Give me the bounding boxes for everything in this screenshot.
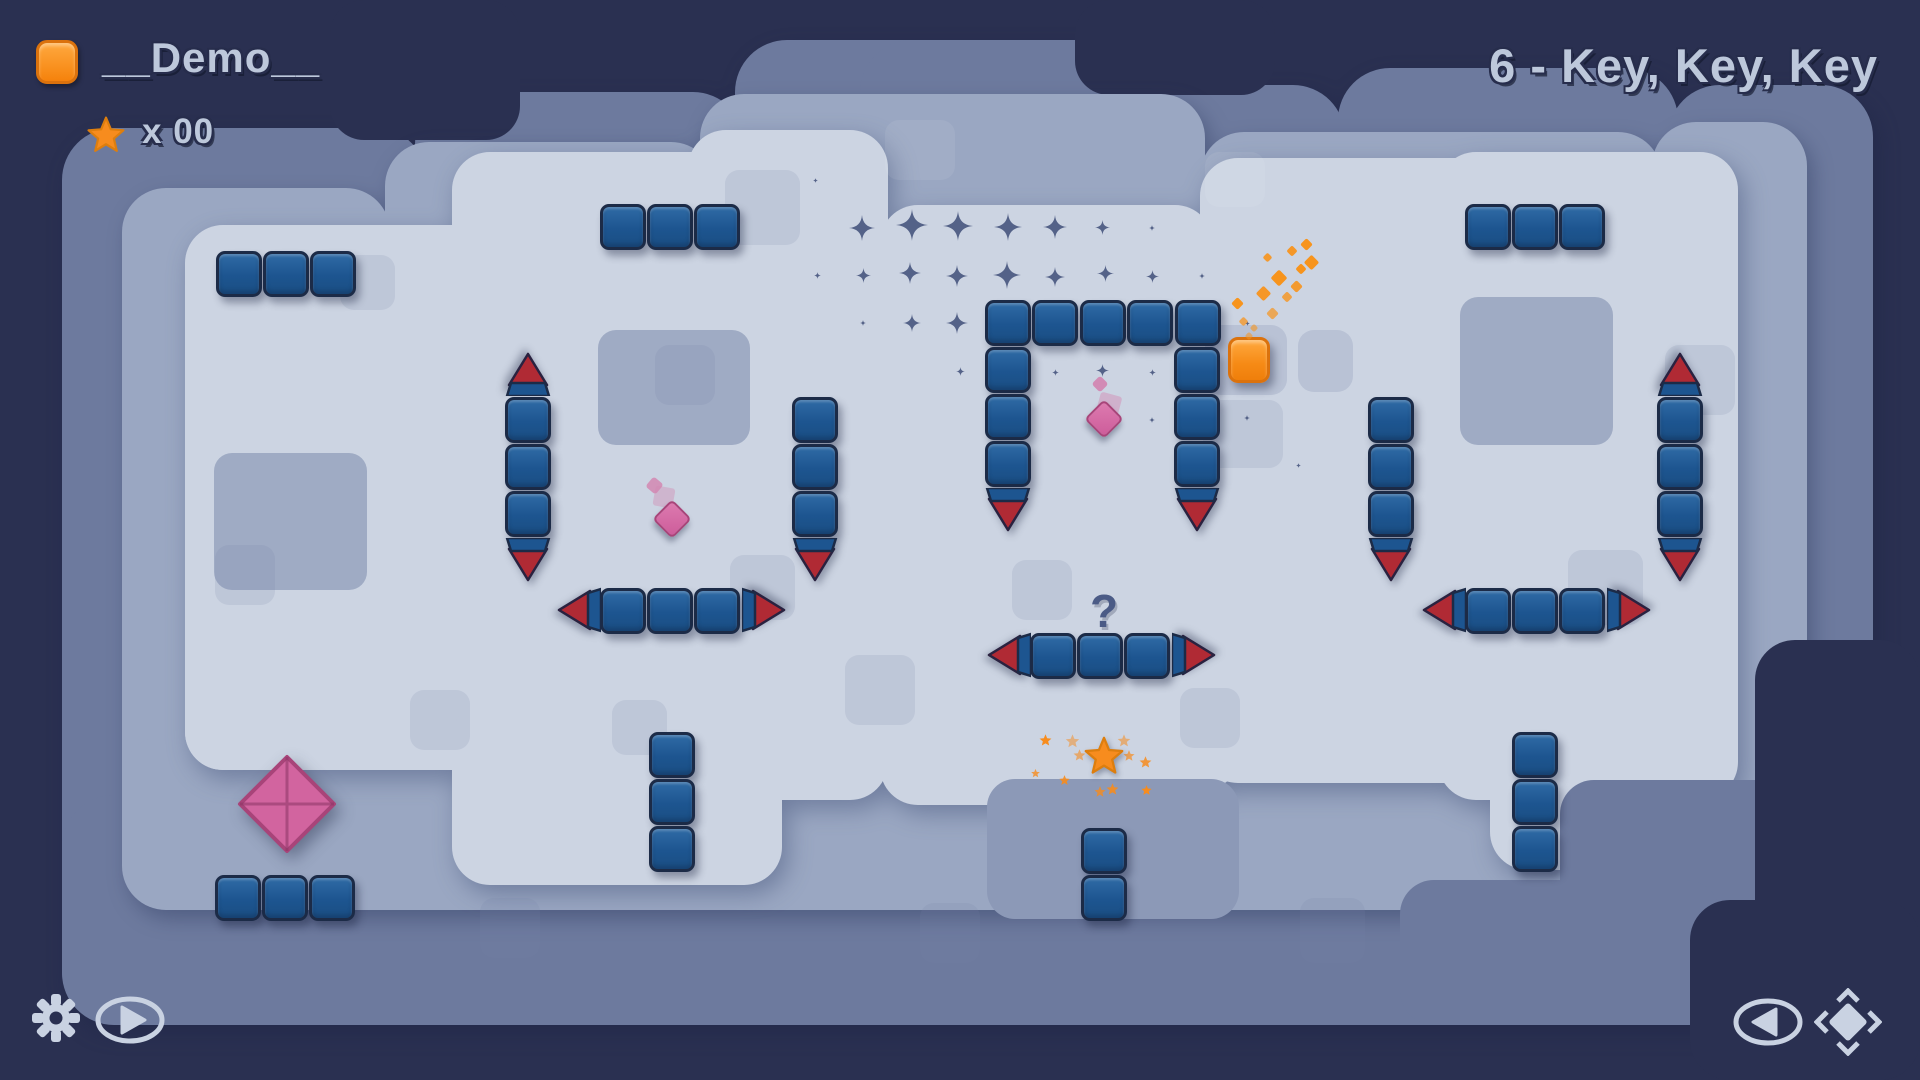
- sparkle-icon: [1296, 463, 1301, 468]
- sparkle-icon: [956, 367, 965, 376]
- block: [1175, 300, 1221, 346]
- block: [1368, 491, 1414, 537]
- level-name: __Demo__: [102, 34, 320, 82]
- star-icon: [84, 114, 128, 158]
- spike-left: [987, 632, 1031, 678]
- sparkle-icon: [943, 211, 973, 241]
- block: [647, 588, 693, 634]
- big-pink-diamond: [235, 752, 339, 856]
- block: [1512, 732, 1558, 778]
- player-particle: [1231, 297, 1244, 310]
- spike-up: [505, 352, 551, 396]
- question-mark: ?: [1074, 584, 1134, 638]
- sparkle-icon: [1244, 415, 1250, 421]
- sparkle-icon: [896, 209, 928, 241]
- spike-left: [1422, 587, 1466, 633]
- block: [600, 588, 646, 634]
- settings-gear-icon[interactable]: [30, 992, 82, 1044]
- block: [1174, 441, 1220, 487]
- spike-down: [1174, 488, 1220, 532]
- sparkle-icon: [1045, 267, 1065, 287]
- spike-up: [1657, 352, 1703, 396]
- block: [1512, 779, 1558, 825]
- sparkle-icon: [1146, 270, 1159, 283]
- spike-down: [1368, 538, 1414, 582]
- player-particle: [1281, 291, 1292, 302]
- block: [1174, 347, 1220, 393]
- player-cube: [1228, 337, 1270, 383]
- block: [985, 300, 1031, 346]
- block: [1512, 588, 1558, 634]
- block: [792, 491, 838, 537]
- block: [1512, 204, 1558, 250]
- player-particle: [1300, 238, 1313, 251]
- spike-right: [742, 587, 786, 633]
- sparkle-icon: [814, 272, 821, 279]
- sparkle-icon: [993, 261, 1021, 289]
- sparkle-icon: [1097, 265, 1114, 282]
- block: [262, 875, 308, 921]
- sparkle-icon: [946, 312, 968, 334]
- sparkle-icon: [1052, 369, 1059, 376]
- sparkle-icon: [1043, 215, 1067, 239]
- sparkle-icon: [994, 213, 1022, 241]
- spike-right: [1607, 587, 1651, 633]
- block: [1030, 633, 1076, 679]
- block: [310, 251, 356, 297]
- block: [1127, 300, 1173, 346]
- player-particle: [1271, 270, 1288, 287]
- player-particle: [1266, 307, 1279, 320]
- block: [1124, 633, 1170, 679]
- sparkle-icon: [813, 178, 818, 183]
- sparkle-icon: [1149, 369, 1156, 376]
- player-particle: [1250, 324, 1258, 332]
- block: [649, 779, 695, 825]
- spike-down: [1657, 538, 1703, 582]
- sparkle-icon: [899, 262, 921, 284]
- block: [1032, 300, 1078, 346]
- block: [505, 397, 551, 443]
- block: [1368, 397, 1414, 443]
- block: [1465, 588, 1511, 634]
- block: [694, 204, 740, 250]
- block: [985, 441, 1031, 487]
- spike-right: [1172, 632, 1216, 678]
- sparkle-icon: [1149, 225, 1155, 231]
- block: [505, 491, 551, 537]
- sparkle-icon: [1096, 364, 1109, 377]
- player-particle: [1290, 280, 1303, 293]
- block: [649, 732, 695, 778]
- level-title: 6 - Key, Key, Key: [1489, 38, 1878, 93]
- star-counter: x 00: [142, 112, 214, 152]
- sparkle-icon: [856, 268, 871, 283]
- block: [792, 397, 838, 443]
- sparkle-icon: [860, 320, 866, 326]
- block: [505, 444, 551, 490]
- player-particle: [1286, 245, 1297, 256]
- recenter-diamond-icon[interactable]: [1814, 988, 1882, 1056]
- block: [1657, 444, 1703, 490]
- block: [1077, 633, 1123, 679]
- block: [1512, 826, 1558, 872]
- block: [792, 444, 838, 490]
- spike-down: [505, 538, 551, 582]
- pink-diamond-trail: [1092, 376, 1109, 393]
- block: [1657, 491, 1703, 537]
- player-particle: [1295, 263, 1306, 274]
- block: [263, 251, 309, 297]
- block: [1080, 300, 1126, 346]
- sparkle-icon: [849, 215, 875, 241]
- game-stage: ? __Demo__ x 00 6 - Key, Key, Key: [0, 0, 1920, 1080]
- sparkle-icon: [903, 314, 921, 332]
- player-particle: [1263, 253, 1273, 263]
- block: [985, 394, 1031, 440]
- block: [1081, 828, 1127, 874]
- block: [216, 251, 262, 297]
- block: [1559, 588, 1605, 634]
- block: [1657, 397, 1703, 443]
- player-chip-icon: [36, 40, 78, 84]
- block: [647, 204, 693, 250]
- block: [985, 347, 1031, 393]
- spike-left: [557, 587, 601, 633]
- block: [694, 588, 740, 634]
- spike-down: [792, 538, 838, 582]
- game-objects: [0, 0, 1920, 1080]
- block: [1174, 394, 1220, 440]
- spike-down: [985, 488, 1031, 532]
- block: [1081, 875, 1127, 921]
- player-particle: [1256, 286, 1272, 302]
- block: [1559, 204, 1605, 250]
- play-button-icon[interactable]: [92, 994, 168, 1046]
- sparkle-icon: [1095, 220, 1110, 235]
- sparkle-icon: [1199, 273, 1205, 279]
- block: [1368, 444, 1414, 490]
- back-button-icon[interactable]: [1730, 996, 1806, 1048]
- sparkle-icon: [1149, 417, 1155, 423]
- block: [309, 875, 355, 921]
- block: [1465, 204, 1511, 250]
- sparkle-icon: [946, 265, 968, 287]
- block: [215, 875, 261, 921]
- block: [649, 826, 695, 872]
- block: [600, 204, 646, 250]
